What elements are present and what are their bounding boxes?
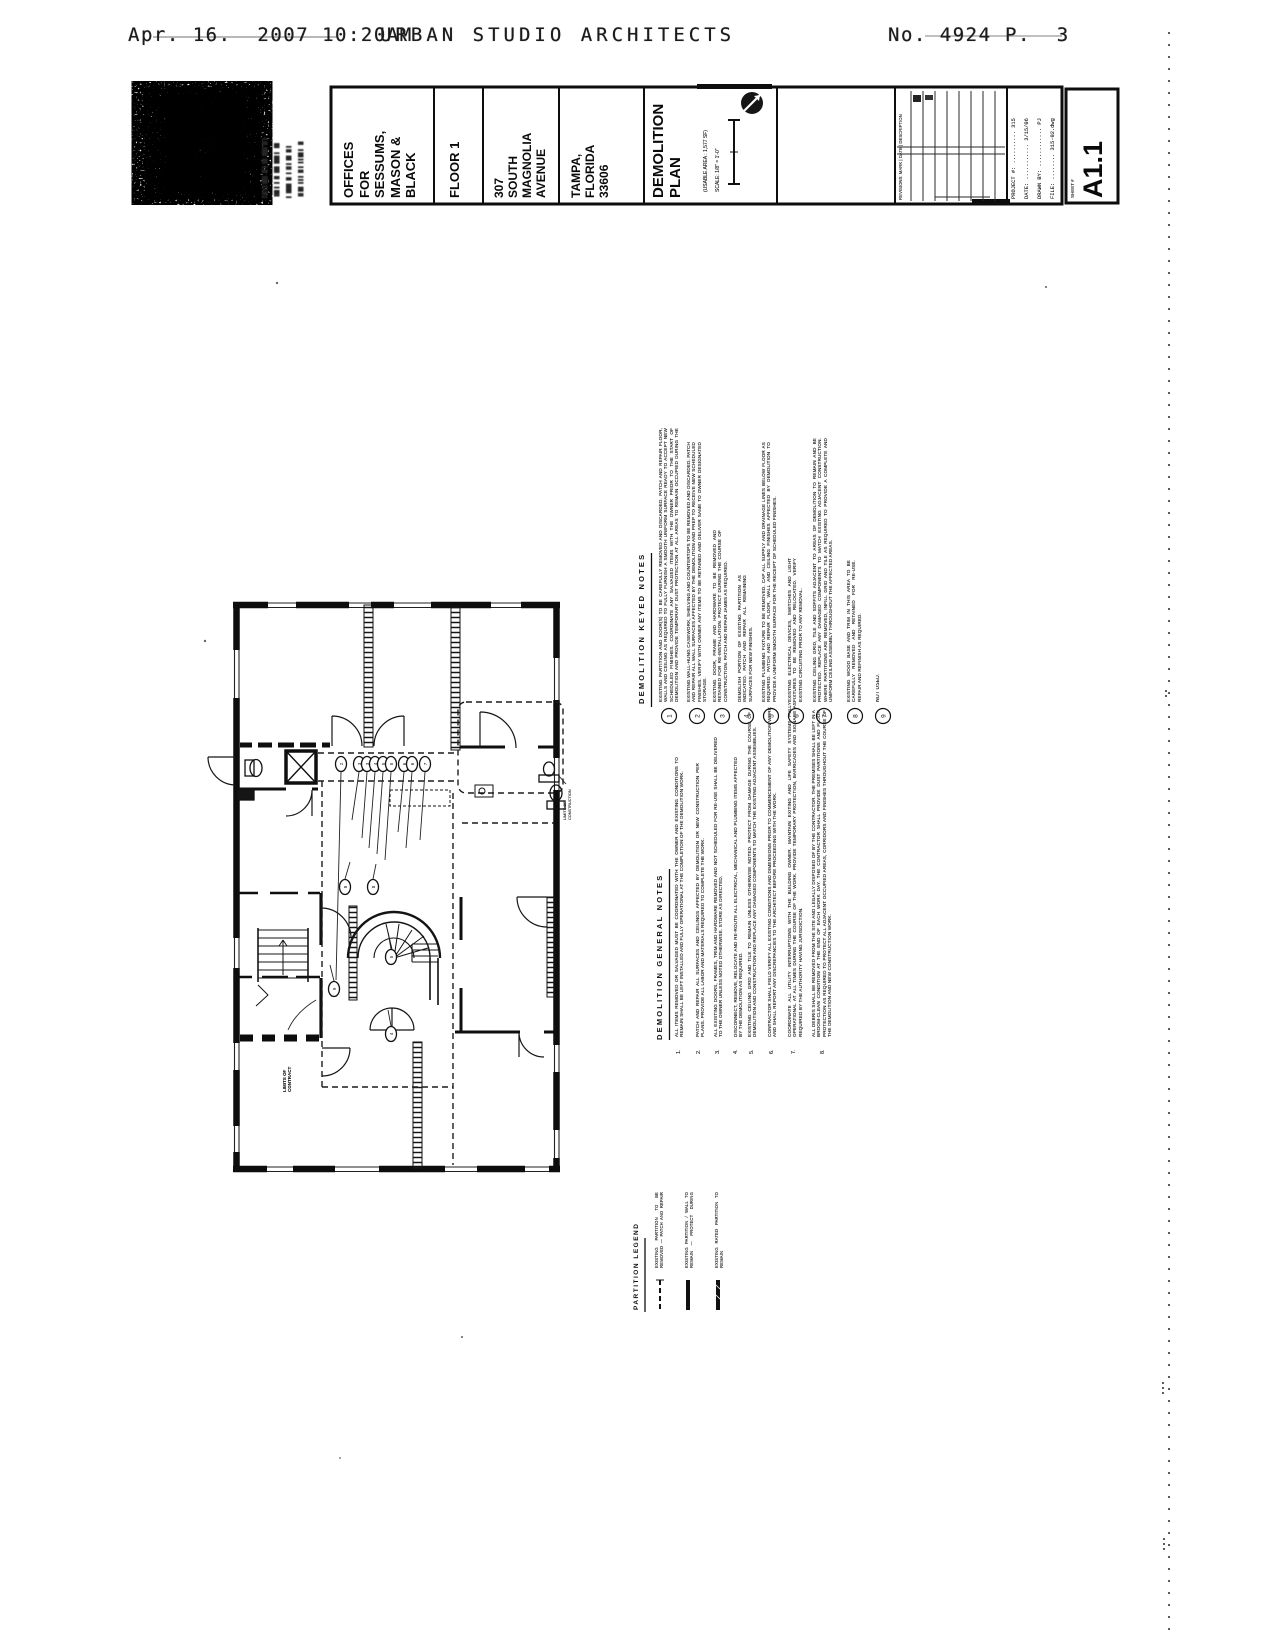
fax-artifacts — [153, 32, 1169, 1640]
project-address: 307 SOUTH MAGNOLIA AVENUE — [492, 96, 548, 198]
legend-label: EXISTING PARTITION / WALL TO REMAIN — PR… — [684, 1192, 696, 1268]
fax-page-number: P. 3 — [1005, 24, 1070, 46]
legend-label: EXISTING RATED PARTITION TO REMAIN — [714, 1192, 726, 1268]
legend-symbols — [656, 1280, 720, 1310]
keyed-note: EXISTING WOOD BASE AND TRIM IN THIS AREA… — [846, 560, 864, 702]
svg-text:5: 5 — [389, 955, 394, 958]
svg-text:5: 5 — [389, 762, 394, 765]
field-date: DATE: ........... 3/15/06 — [1024, 95, 1035, 199]
general-note-number: 2. — [697, 1041, 705, 1054]
elevator-shaft — [286, 751, 316, 783]
fax-doc-number: No. 4924 — [888, 24, 992, 46]
svg-text:2: 2 — [695, 714, 702, 718]
revisions-table — [897, 91, 1005, 201]
svg-text:2: 2 — [339, 762, 344, 765]
general-notes-title: DEMOLITION GENERAL NOTES — [655, 872, 666, 1040]
logo-contact-line: ▐▌█▌▐ ▌▌▐▌▌▐ ▌█▌▌ ▐▌ — [298, 90, 308, 198]
north-arrow-icon — [741, 92, 763, 114]
svg-text:3: 3 — [357, 762, 362, 765]
floor-label: FLOOR 1 — [447, 96, 467, 198]
sheet-number-label: SHEET # — [1070, 158, 1078, 198]
general-note-number: 3. — [716, 1041, 724, 1054]
svg-text:8: 8 — [343, 885, 348, 888]
limits-of-construction-label: LIMITS OF CONSTRUCTION — [563, 786, 572, 820]
line-art: URBAN — [0, 0, 1275, 1649]
logo-contact-line: ▌▐██▌▐▌▐ ▐▌▌ █▌▐▌▌ — [286, 90, 296, 198]
general-note: EXISTING CEILING GRID AND TILE TO REMAIN… — [747, 712, 763, 1037]
legend-label: EXISTING PARTITION TO BE REMOVED — PATCH… — [654, 1192, 666, 1268]
keyed-note: EXISTING PARTITION AND DOOR(S) TO BE CAR… — [658, 428, 680, 702]
svg-text:6: 6 — [410, 762, 415, 765]
general-note: ALL EXISTING DOORS, FRAMES, TRIM AND HAR… — [713, 737, 729, 1037]
svg-text:4: 4 — [389, 1032, 394, 1035]
revisions-label: REVISIONS: MARK | DATE | DESCRIPTION — [898, 94, 908, 200]
general-note: PATCH AND REPAIR ALL SURFACES AND CEILIN… — [695, 763, 709, 1037]
general-note-number: 7. — [792, 1041, 800, 1054]
sheet-number: A1.1 — [1078, 100, 1114, 198]
fax-page: URBAN — [0, 0, 1275, 1649]
keyed-notes-title: DEMOLITION KEYED NOTES — [637, 556, 648, 704]
general-note-number: 4. — [734, 1041, 742, 1054]
general-note: COORDINATE ALL UTILITY INTERRUPTIONS WIT… — [787, 702, 807, 1037]
general-note: CONTRACTOR SHALL FIELD VERIFY ALL EXISTI… — [767, 707, 783, 1037]
svg-text:8: 8 — [853, 714, 860, 718]
keyed-note: EXISTING DOOR, FRAME AND HARDWARE TO BE … — [712, 530, 732, 702]
keyed-note: EXISTING CEILING GRID, TILE AND SOFFITS … — [812, 438, 836, 702]
svg-text:7: 7 — [423, 762, 428, 765]
scale-label: SCALE: 1/8" = 1'-0" — [716, 112, 724, 192]
field-drawn-by: DRAWN BY: ............ PJ — [1037, 95, 1048, 199]
field-file: FILE: ........ 315-02.dwg — [1050, 95, 1061, 199]
fax-datetime: Apr. 16. 2007 10:20AM — [128, 24, 413, 46]
keyed-note: DEMOLISH PORTION OF EXISTING PARTITION A… — [737, 575, 755, 702]
general-note-number: 5. — [750, 1041, 758, 1054]
svg-text:9: 9 — [881, 714, 888, 718]
general-note: ALL DEBRIS SHALL BE REMOVED FROM THE SIT… — [811, 710, 841, 1037]
keyed-note: NOT USED. — [876, 640, 890, 702]
svg-text:3: 3 — [720, 714, 727, 718]
scale-bar — [728, 120, 740, 184]
general-note-number: 1. — [677, 1041, 685, 1054]
keyed-tags — [329, 757, 431, 1042]
svg-text:5: 5 — [381, 762, 386, 765]
fax-sender: URBAN STUDIO ARCHITECTS — [380, 24, 735, 46]
field-project-number: PROJECT #: .......... 315 — [1011, 95, 1022, 199]
project-city: TAMPA, FLORIDA 33606 — [569, 96, 611, 198]
svg-text:8: 8 — [371, 885, 376, 888]
svg-text:6: 6 — [402, 762, 407, 765]
partition-legend-title: PARTITION LEGEND — [633, 1240, 643, 1310]
keyed-note: EXISTING PLUMBING FIXTURE TO BE REMOVED.… — [761, 442, 781, 702]
svg-text:3: 3 — [365, 762, 370, 765]
urban-logo: URBAN — [138, 87, 266, 199]
floor-plan: 2 3 3 4 5 5 6 6 7 8 8 9 5 4 — [208, 603, 566, 1172]
usable-area-label: (USABLE AREA : 1,577 SF) — [704, 112, 712, 192]
logo-contact-line: ▐█▌▌▐ ▐▌▐█▌ ██▌▌ ▐█ — [274, 90, 284, 198]
general-note: DISCONNECT, REMOVE, RELOCATE AND RE-ROUT… — [733, 757, 743, 1037]
svg-text:4: 4 — [373, 762, 378, 765]
client-name: OFFICES FOR SESSUMS, MASON & BLACK — [341, 96, 427, 198]
general-note: ALL ITEMS REMOVED OR SALVAGED MUST BE CO… — [674, 757, 690, 1037]
general-note-number: 6. — [770, 1041, 778, 1054]
keyed-note: EXISTING WALL-HUNG CASEWORK, SHELVING AN… — [686, 442, 708, 702]
svg-text:1: 1 — [667, 714, 674, 718]
svg-text:9: 9 — [332, 987, 337, 990]
logo-contact-line: ▌█▐ ▌██▌▐▌▌ █▌▐██ ▐▌▌ — [262, 90, 272, 198]
sheet-title: DEMOLITION PLAN — [650, 96, 688, 198]
general-note-number: 8. — [821, 1041, 829, 1054]
straight-stair — [256, 928, 308, 1006]
keyed-note: EXISTING ELECTRICAL DEVICES, SWITCHES AN… — [787, 558, 805, 702]
limits-of-contract-label: LIMITS OF CONTRACT — [282, 1032, 293, 1092]
